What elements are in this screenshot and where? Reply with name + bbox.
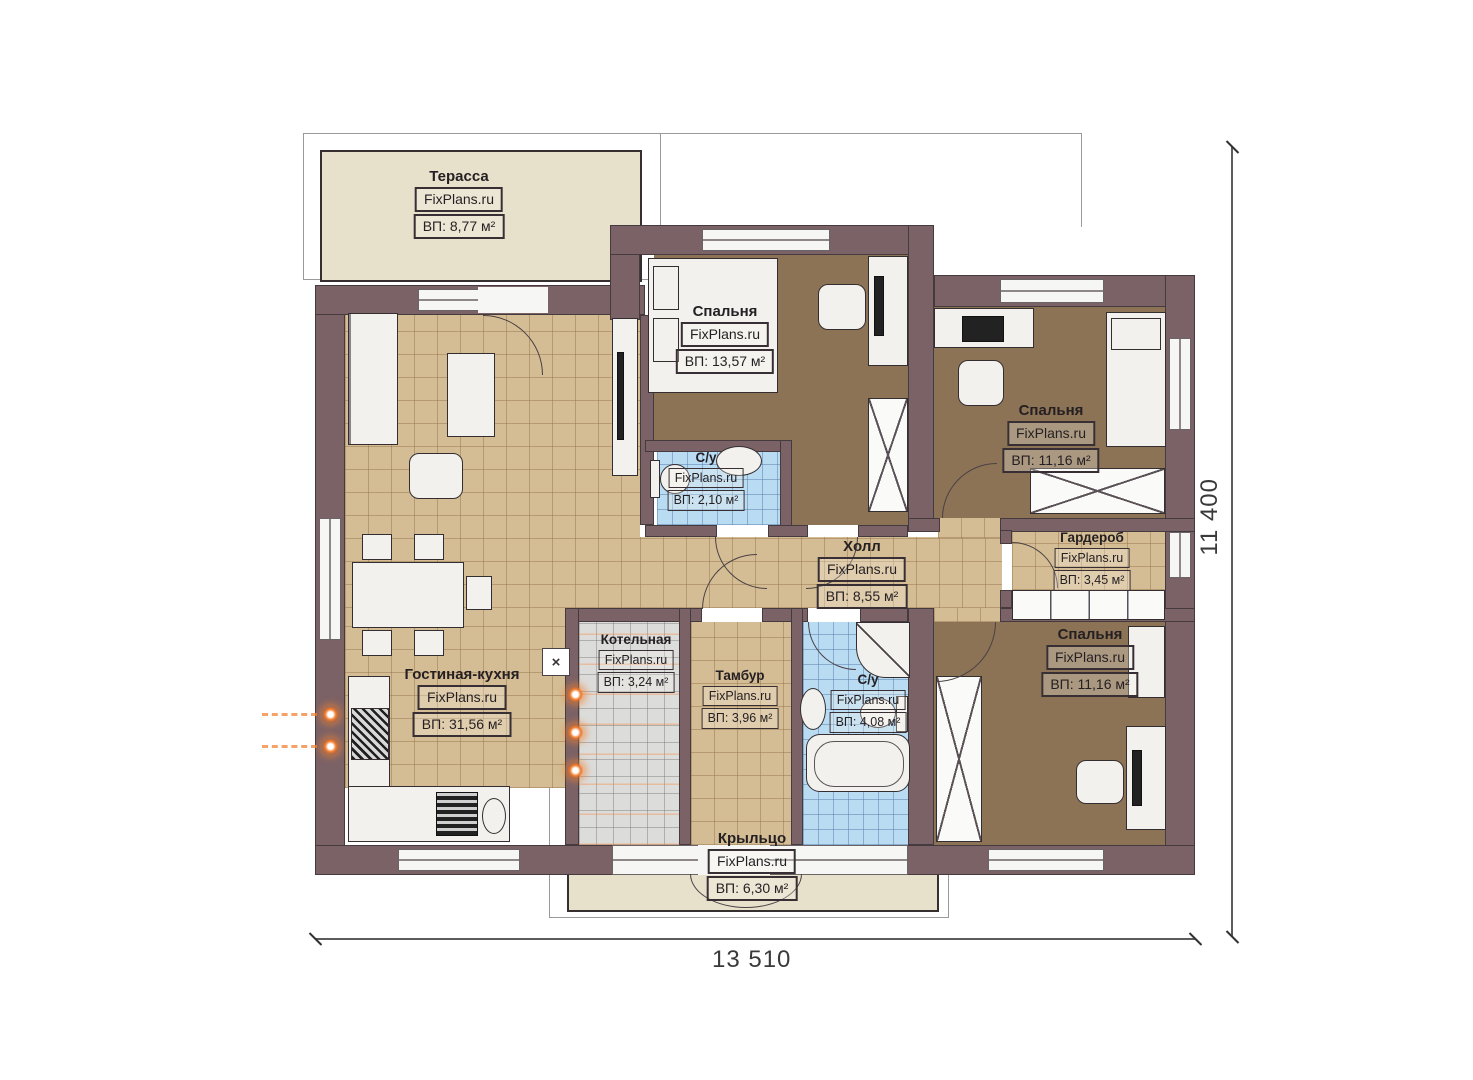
- room-name: Холл: [843, 538, 881, 555]
- pillow: [1111, 318, 1161, 350]
- washbasin: [800, 688, 826, 730]
- window: [1169, 338, 1191, 430]
- window: [319, 518, 341, 640]
- computer-icon: [874, 276, 884, 336]
- window: [1000, 279, 1104, 303]
- desk-chair: [958, 360, 1004, 406]
- wall-wc-bedroom: [908, 608, 934, 845]
- radiator-icon: [567, 724, 584, 741]
- wall-hall-north: [858, 525, 908, 537]
- floor-plan: × Терасса FixPlans.ru ВП: 8,77 м² Гос: [0, 0, 1473, 1080]
- room-name: Спальня: [693, 303, 758, 320]
- room-name: С/у: [857, 672, 878, 688]
- room-name: Котельная: [601, 632, 672, 648]
- room-name: Крыльцо: [718, 830, 786, 847]
- dining-chair: [362, 534, 392, 560]
- wall-hall-north: [645, 525, 717, 537]
- kitchen-sink: [482, 798, 506, 834]
- tv-stand: [612, 318, 638, 476]
- room-area: ВП: 11,16 м²: [1041, 672, 1138, 697]
- brand-watermark: FixPlans.ru: [703, 686, 778, 707]
- dish-rack-icon: [436, 792, 478, 836]
- brand-watermark: FixPlans.ru: [1046, 645, 1134, 670]
- room-area: ВП: 3,45 м²: [1054, 570, 1131, 591]
- room-name: Гардероб: [1060, 530, 1124, 546]
- room-label-porch: Крыльцо FixPlans.ru ВП: 6,30 м²: [707, 830, 798, 901]
- sofa: [348, 313, 398, 445]
- room-label-bedroom-top: Спальня FixPlans.ru ВП: 13,57 м²: [676, 303, 774, 374]
- room-name: Терасса: [429, 168, 488, 185]
- wardrobe-icon: [1030, 468, 1165, 514]
- dimension-line-bottom: [315, 938, 1195, 940]
- radiator-icon: [567, 762, 584, 779]
- room-name: Спальня: [1058, 626, 1123, 643]
- dimension-width: 13 510: [712, 946, 791, 974]
- computer-icon: [1132, 750, 1142, 806]
- room-name: Спальня: [1019, 402, 1084, 419]
- wall-boiler-vestibule: [679, 608, 691, 845]
- room-area: ВП: 4,08 м²: [830, 712, 907, 733]
- room-area: ВП: 2,10 м²: [668, 490, 745, 511]
- dimension-height: 11 400: [1196, 478, 1224, 556]
- room-label-living: Гостиная-кухня FixPlans.ru ВП: 31,56 м²: [405, 666, 520, 737]
- dining-chair: [414, 534, 444, 560]
- room-area: ВП: 8,55 м²: [817, 584, 908, 609]
- room-name: Гостиная-кухня: [405, 666, 520, 683]
- room-area: ВП: 3,24 м²: [598, 672, 675, 693]
- room-label-bedroom-right: Спальня FixPlans.ru ВП: 11,16 м²: [1002, 402, 1099, 473]
- wall-hall-wardrobe: [1000, 590, 1012, 608]
- bathtub-inner: [814, 741, 904, 787]
- brand-watermark: FixPlans.ru: [1055, 548, 1130, 569]
- room-area: ВП: 13,57 м²: [676, 349, 774, 374]
- window: [988, 849, 1104, 871]
- dining-table: [352, 562, 464, 628]
- radiator-icon: [322, 738, 339, 755]
- printer-icon: [962, 316, 1004, 342]
- room-area: ВП: 3,96 м²: [702, 708, 779, 729]
- tv-icon: [617, 352, 624, 440]
- brand-watermark: FixPlans.ru: [708, 849, 796, 874]
- room-area: ВП: 8,77 м²: [414, 214, 505, 239]
- window: [1169, 532, 1191, 578]
- wardrobe-icon: [868, 398, 908, 512]
- room-name: Тамбур: [716, 668, 765, 684]
- wall-hall-wardrobe: [1000, 530, 1012, 544]
- wall-hall-south: [860, 608, 908, 622]
- room-label-wc-big: С/у FixPlans.ru ВП: 4,08 м²: [830, 672, 907, 733]
- floor-hall: [938, 518, 1000, 538]
- room-label-hall: Холл FixPlans.ru ВП: 8,55 м²: [817, 538, 908, 609]
- heat-flow-line: [262, 745, 317, 748]
- dining-chair: [414, 630, 444, 656]
- brand-watermark: FixPlans.ru: [669, 468, 744, 489]
- room-label-boiler: Котельная FixPlans.ru ВП: 3,24 м²: [598, 632, 675, 693]
- floor-vestibule: [691, 622, 791, 845]
- wall-bedroom-right-south: [908, 518, 940, 532]
- vent-icon: ×: [542, 648, 570, 676]
- desk-chair: [818, 284, 866, 330]
- wall-bedrooms-divider: [908, 225, 934, 520]
- brand-watermark: FixPlans.ru: [1007, 421, 1095, 446]
- brand-watermark: FixPlans.ru: [599, 650, 674, 671]
- room-label-wc-small: С/у FixPlans.ru ВП: 2,10 м²: [668, 450, 745, 511]
- desk-chair: [1076, 760, 1124, 804]
- room-label-bedroom-bottom: Спальня FixPlans.ru ВП: 11,16 м²: [1041, 626, 1138, 697]
- terrace-door-opening: [478, 287, 548, 313]
- room-name: С/у: [695, 450, 716, 466]
- brand-watermark: FixPlans.ru: [418, 685, 506, 710]
- dining-chair: [466, 576, 492, 610]
- brand-watermark: FixPlans.ru: [818, 557, 906, 582]
- wall-vestibule-wc: [791, 608, 803, 845]
- roof-outline-line: [1081, 133, 1082, 227]
- room-label-terrace: Терасса FixPlans.ru ВП: 8,77 м²: [414, 168, 505, 239]
- floor-hall: [934, 608, 1000, 622]
- room-label-vestibule: Тамбур FixPlans.ru ВП: 3,96 м²: [702, 668, 779, 729]
- window: [398, 849, 520, 871]
- shelves: [1012, 590, 1165, 620]
- wall-wc-east: [780, 440, 792, 530]
- brand-watermark: FixPlans.ru: [415, 187, 503, 212]
- radiator-icon: [322, 706, 339, 723]
- wardrobe-icon: [936, 676, 982, 842]
- brand-watermark: FixPlans.ru: [831, 690, 906, 711]
- window: [702, 229, 830, 251]
- dining-chair: [362, 630, 392, 656]
- stove-hob-icon: [351, 708, 389, 760]
- toilet-tank: [650, 460, 660, 498]
- dimension-line-right: [1231, 147, 1233, 937]
- heat-flow-line: [262, 713, 317, 716]
- room-label-wardrobe: Гардероб FixPlans.ru ВП: 3,45 м²: [1054, 530, 1131, 591]
- radiator-icon: [567, 686, 584, 703]
- room-area: ВП: 6,30 м²: [707, 876, 798, 901]
- armchair: [409, 453, 463, 499]
- room-area: ВП: 31,56 м²: [413, 712, 511, 737]
- wall-hall-north: [768, 525, 808, 537]
- room-area: ВП: 11,16 м²: [1002, 448, 1099, 473]
- brand-watermark: FixPlans.ru: [681, 322, 769, 347]
